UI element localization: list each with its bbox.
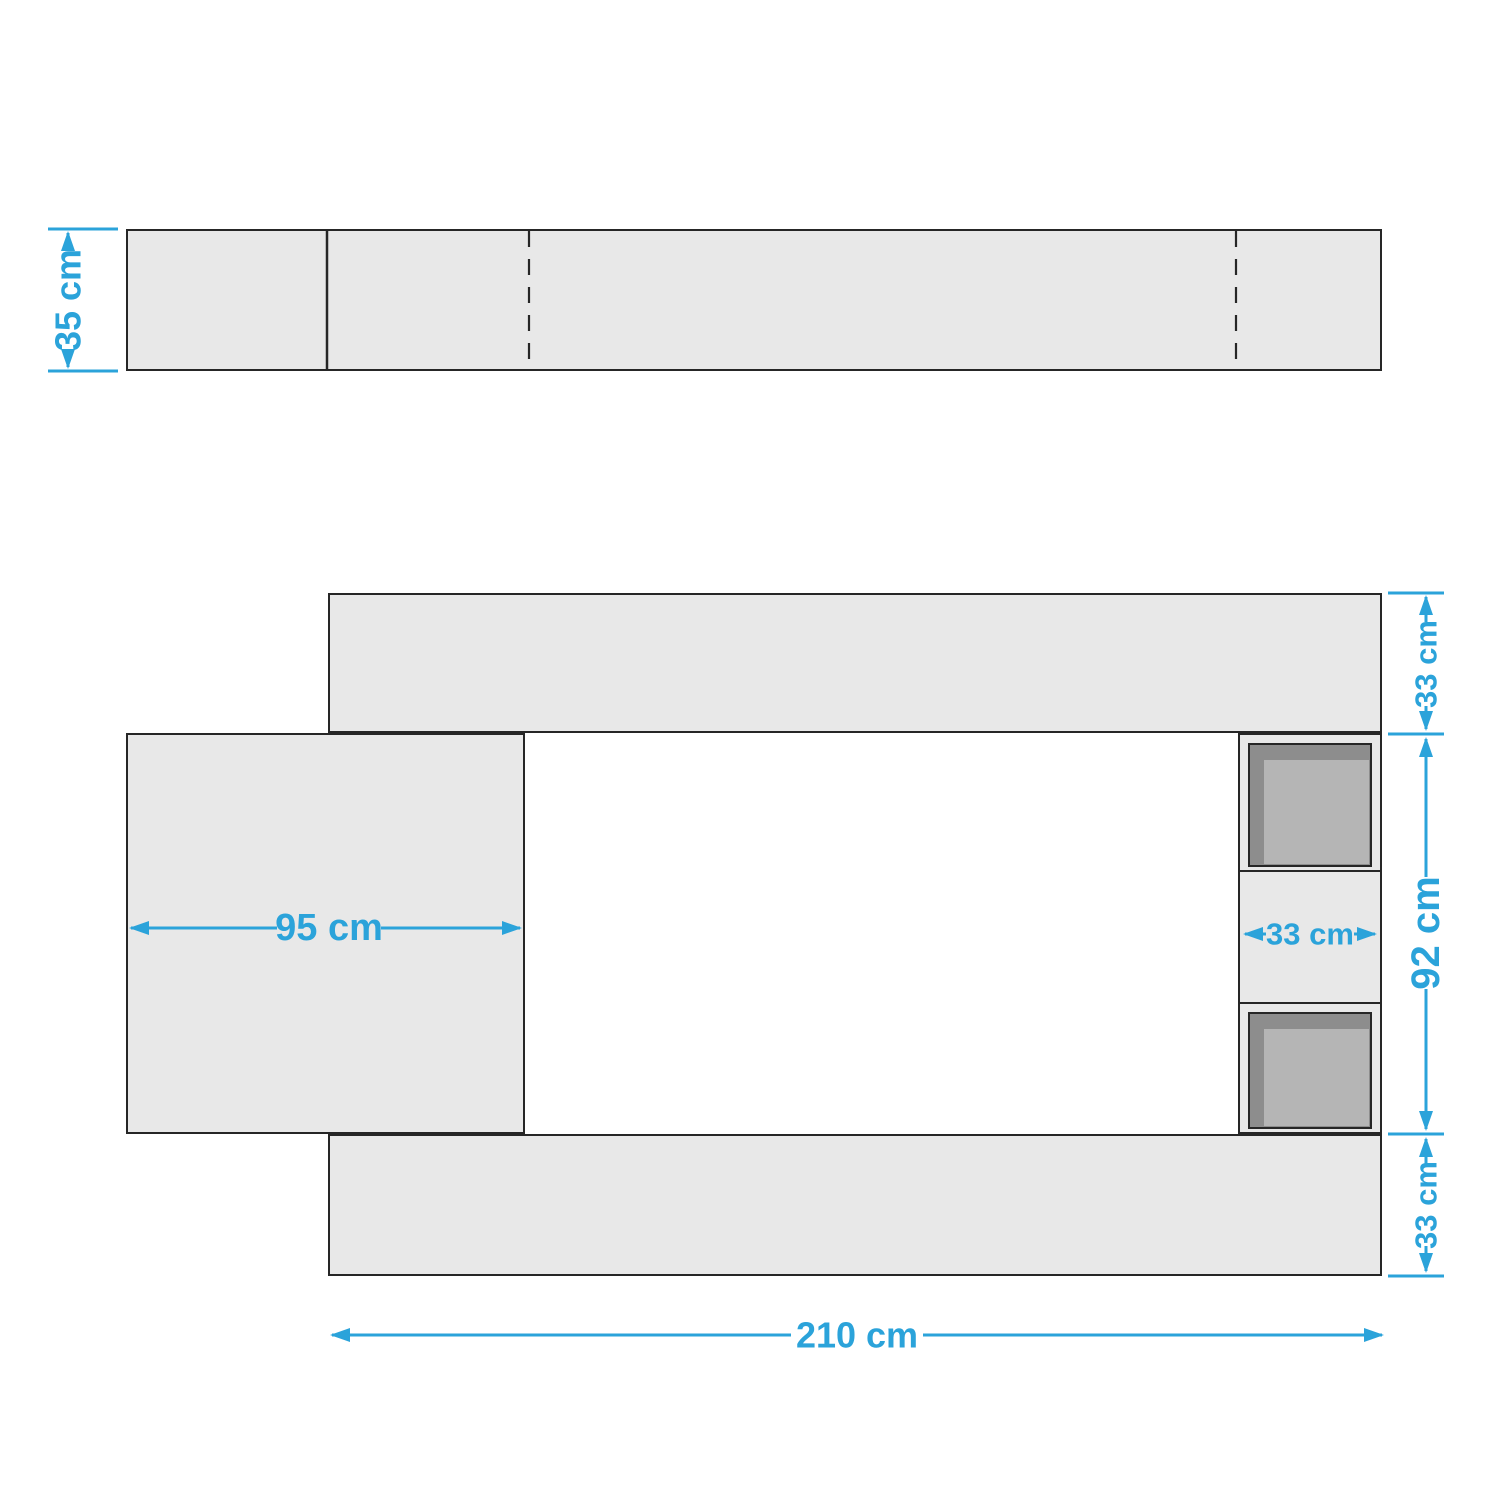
bottom-shelf-label: 33 cm [1409,1161,1444,1249]
cubby-top-back-panel [1264,760,1369,864]
arrowhead-up-icon [1419,1137,1433,1157]
arrowhead-left-icon [330,1328,350,1342]
cubby-top-cell [1238,733,1382,872]
front-bottom-shelf-panel [328,1134,1382,1276]
wall-unit-dimension-diagram: 35 cm 95 cm 33 cm [0,0,1500,1500]
depth-dimension-label: 35 cm [48,249,89,351]
arrowhead-up-icon [61,231,75,251]
cubby-bottom-back-panel [1264,1029,1369,1126]
top-shelf-dimension: 33 cm [1409,595,1444,731]
top-shelf-label: 33 cm [1409,620,1444,708]
bottom-shelf-dimension: 33 cm [1409,1137,1444,1273]
arrowhead-right-icon [1364,1328,1384,1342]
arrowhead-up-icon [1419,737,1433,757]
total-width-dimension: 210 cm [330,1315,1384,1356]
cubby-gap-cell [1238,870,1382,1004]
middle-height-dimension: 92 cm [1404,737,1448,1131]
cubby-top-opening [1248,743,1372,867]
cubby-bottom-cell [1238,1002,1382,1134]
front-top-shelf-panel [328,593,1382,733]
total-width-label: 210 cm [796,1315,918,1356]
cubby-bottom-opening [1248,1012,1372,1129]
right-side-dimensions: 33 cm 92 cm 33 cm [1388,593,1448,1276]
top-view-panel [126,229,1382,371]
arrowhead-down-icon [1419,711,1433,731]
arrowhead-up-icon [1419,595,1433,615]
arrowhead-down-icon [61,349,75,369]
middle-height-label: 92 cm [1404,876,1448,989]
depth-dimension: 35 cm [48,229,119,371]
left-side-panel [126,733,525,1134]
arrowhead-down-icon [1419,1111,1433,1131]
arrowhead-down-icon [1419,1253,1433,1273]
